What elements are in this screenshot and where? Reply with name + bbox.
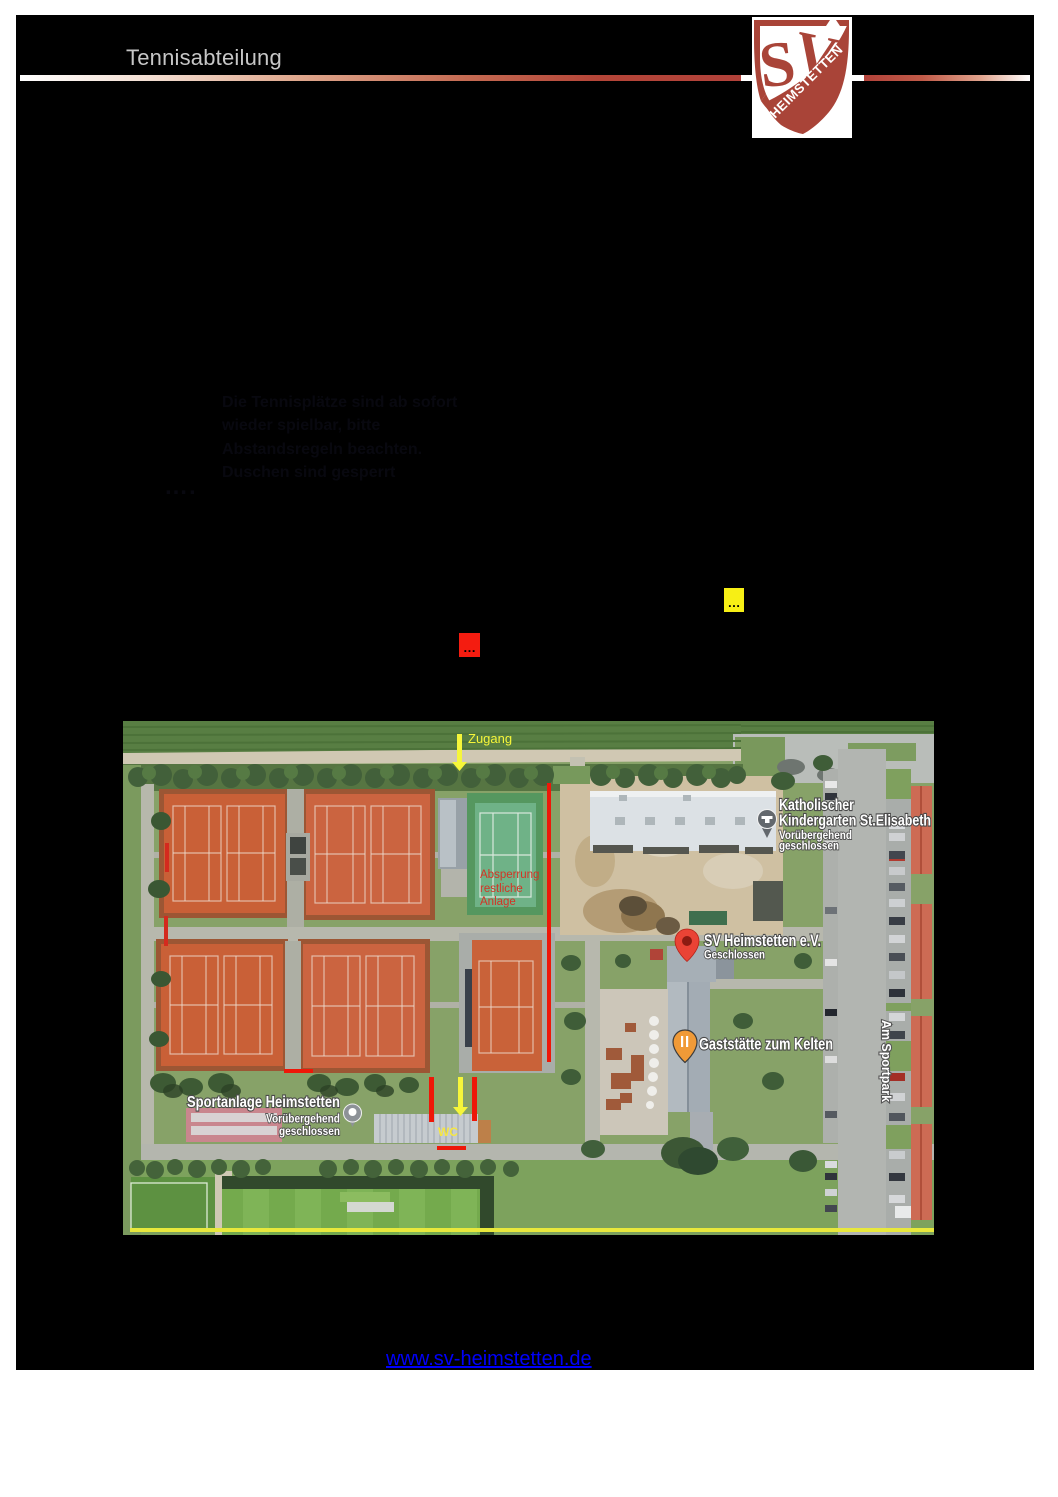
- svg-text:geschlossen: geschlossen: [779, 839, 839, 853]
- svg-text:Anlage: Anlage: [480, 896, 516, 908]
- svg-text:Katholischer: Katholischer: [779, 797, 854, 814]
- svg-text:WC: WC: [438, 1125, 458, 1139]
- svg-text:restliche: restliche: [480, 883, 523, 895]
- svg-text:geschlossen: geschlossen: [279, 1124, 340, 1138]
- svg-text:Zugang: Zugang: [468, 731, 512, 746]
- svg-text:Kindergarten St.Elisabeth: Kindergarten St.Elisabeth: [779, 813, 931, 830]
- svg-text:Sportanlage Heimstetten: Sportanlage Heimstetten: [187, 1094, 340, 1111]
- svg-text:Gaststätte zum Kelten: Gaststätte zum Kelten: [699, 1035, 833, 1054]
- svg-text:Geschlossen: Geschlossen: [704, 948, 765, 962]
- svg-text:Absperrung: Absperrung: [480, 869, 539, 881]
- svg-text:Am Sportpark: Am Sportpark: [879, 1020, 893, 1102]
